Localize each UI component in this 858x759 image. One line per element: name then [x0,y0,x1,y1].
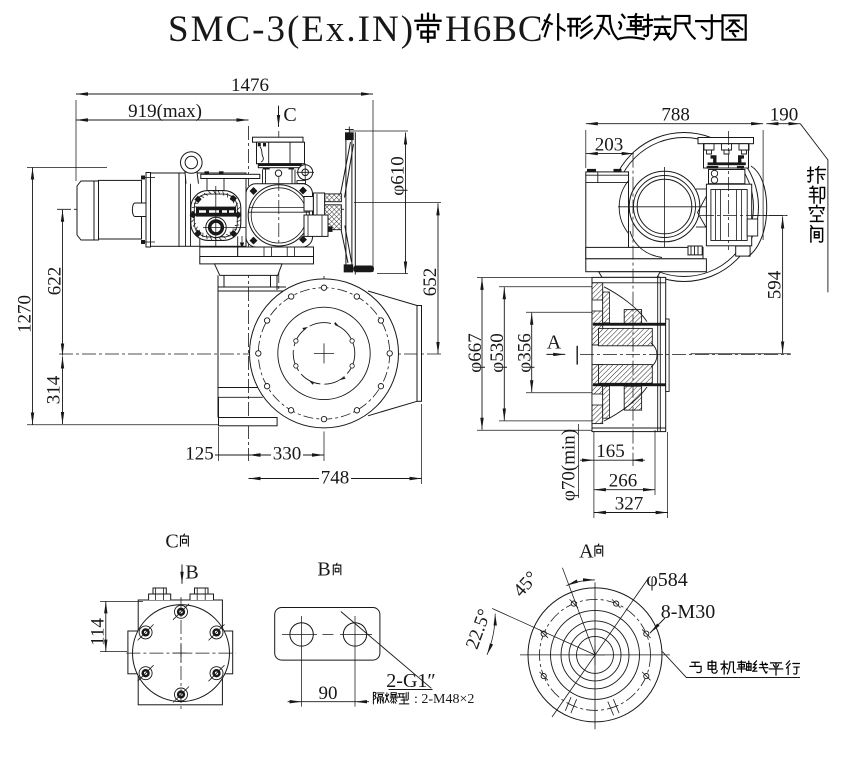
svg-text:314: 314 [44,375,65,404]
svg-text:622: 622 [45,267,66,296]
svg-text:165: 165 [596,441,625,462]
svg-text:H6BC: H6BC [445,9,544,50]
svg-text:A: A [579,541,594,563]
svg-text:594: 594 [765,270,786,299]
svg-text:2-G1″: 2-G1″ [386,670,435,692]
svg-text:φ356: φ356 [515,333,536,372]
svg-text:327: 327 [615,494,644,515]
svg-text:1270: 1270 [15,295,36,333]
svg-text:652: 652 [420,268,441,297]
svg-text:114: 114 [88,618,109,646]
svg-text:1476: 1476 [231,75,269,96]
svg-text:90: 90 [319,683,338,704]
svg-text:C: C [283,104,296,126]
svg-text:φ667: φ667 [465,333,486,372]
svg-text:φ610: φ610 [388,156,409,195]
svg-text:788: 788 [661,105,690,126]
svg-text:748: 748 [321,468,350,489]
svg-text:330: 330 [273,444,302,465]
svg-text:190: 190 [770,105,799,126]
svg-text:φ584: φ584 [646,569,688,591]
svg-text:SMC-3(Ex.IN): SMC-3(Ex.IN) [168,9,415,50]
svg-text:B: B [185,562,198,584]
svg-text:C: C [165,531,178,553]
svg-text:8-M30: 8-M30 [661,601,715,623]
svg-text:A: A [547,332,562,354]
svg-text:φ70(min): φ70(min) [559,429,580,501]
svg-text:919(max): 919(max) [128,101,202,122]
svg-text:φ530: φ530 [487,333,508,372]
svg-text:125: 125 [185,444,214,465]
svg-text:B: B [317,559,330,581]
svg-text:266: 266 [609,471,638,492]
svg-text:: 2-M48×2: : 2-M48×2 [414,692,474,707]
svg-text:203: 203 [595,135,624,156]
